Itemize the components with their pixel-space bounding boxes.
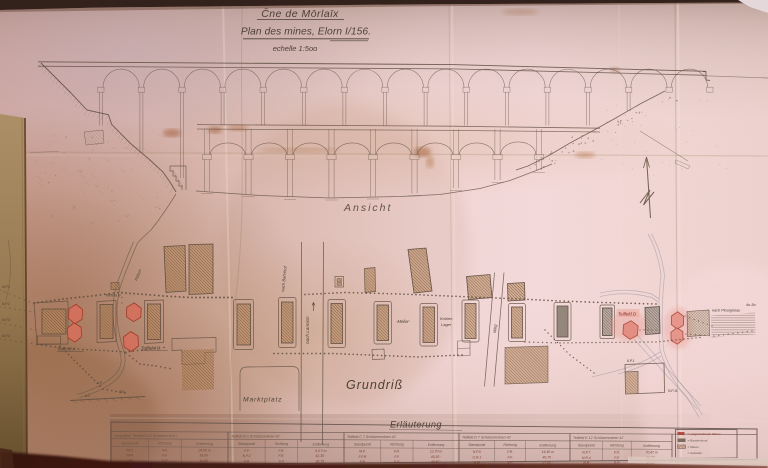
svg-text:F.F.: F.F. [614,456,620,460]
svg-text:Standpunkt: Standpunkt [578,443,596,447]
svg-text:Richtung: Richtung [390,443,403,447]
svg-text:Richtung: Richtung [158,442,171,446]
svg-text:N.P.3: N.P.3 [2,318,10,322]
svg-text:14,40 m: 14,40 m [542,450,554,454]
svg-text:F.R.: F.R. [278,449,284,453]
svg-text:N.P.5: N.P.5 [473,450,481,454]
svg-text:4o-5o: 4o-5o [746,303,756,307]
svg-text:F.R.: F.R. [614,450,620,454]
svg-text:Kohlen: Kohlen [440,316,453,321]
svg-text:40,70 ·: 40,70 · [543,455,554,459]
svg-text:Weg: Weg [492,323,498,333]
svg-text:Erläuterung: Erläuterung [390,420,442,430]
svg-text:NP1: NP1 [126,448,133,452]
svg-text:N.P.11: N.P.11 [668,389,678,393]
svg-text:Vorgeländ. Teilfeld A 12 Schüt: Vorgeländ. Teilfeld A 12 Schützen M.A.I [114,434,177,438]
svg-text:6,5 F m: 6,5 F m [315,449,327,453]
svg-text:70,47 m: 70,47 m [645,450,657,454]
svg-text:F.R.: F.R. [278,454,284,458]
svg-text:F.F.: F.F. [508,455,514,459]
svg-text:Entfernung: Entfernung [428,443,445,447]
svg-text:42,35 ·: 42,35 · [316,454,327,458]
svg-text:Marktplatz: Marktplatz [243,397,282,404]
svg-text:Entfernung: Entfernung [196,442,213,446]
svg-text:C̄ne de Mōrlaīx: C̄ne de Mōrlaīx [261,7,339,20]
svg-text:4.P: 4.P [97,381,103,385]
svg-text:Richtung: Richtung [503,443,516,447]
svg-text:S.P.: S.P. [278,460,284,464]
svg-text:F.R.: F.R. [507,450,513,454]
svg-text:F.P.R: F.P.R [359,455,367,459]
svg-text:87o: 87o [119,390,125,394]
svg-text:F.R.: F.R. [162,448,168,452]
svg-text:Plan des mines, Elorn I/156.: Plan des mines, Elorn I/156. [241,27,371,38]
svg-text:Teilfeld D: Teilfeld D [618,312,637,317]
svg-text:24,50 m: 24,50 m [197,448,210,452]
svg-text:N.R.4: N.R.4 [582,456,591,460]
svg-text:= Gelände: = Gelände [688,451,703,455]
svg-text:Entfernung: Entfernung [313,442,330,446]
svg-text:F.R.: F.R. [394,449,400,453]
svg-text:38,70 ·: 38,70 · [316,460,327,464]
svg-text:39,00 ·: 39,00 · [199,454,210,458]
svg-text:N.P.2: N.P.2 [2,302,10,306]
svg-text:Lager: Lager [441,322,452,327]
svg-text:Standpunkt: Standpunkt [238,442,256,446]
svg-text:M.P.: M.P. [359,449,366,453]
svg-text:Grundriß: Grundriß [346,378,403,392]
svg-text:6.P.1: 6.P.1 [627,359,635,363]
svg-text:Richtung: Richtung [275,442,288,446]
svg-text:F.F.: F.F. [162,454,168,458]
svg-text:Ansicht: Ansicht [343,202,392,214]
svg-text:Teilfeld B: Teilfeld B [105,294,121,298]
svg-text:N.P.7: N.P.7 [582,450,590,454]
svg-text:nach Lannion: nach Lannion [305,316,310,344]
svg-text:NP4: NP4 [126,454,133,458]
svg-text:Entfernung: Entfernung [643,444,660,448]
svg-text:F.P: F.P [244,449,250,453]
svg-text:Standpunkt: Standpunkt [468,443,486,447]
svg-text:-Meiler-: -Meiler- [396,319,411,324]
svg-text:Standpunkt: Standpunkt [354,442,372,446]
svg-text:Teilfeld B 3 Schützenminen: Teilfeld B 3 Schützenminen 42 [231,434,279,438]
svg-text:= Mauer: = Mauer [688,445,700,449]
svg-text:nach Plouigneau: nach Plouigneau [712,309,741,313]
svg-text:45,30 ·: 45,30 · [431,455,442,459]
svg-text:Teilfeld D 7 Schützenminen: Teilfeld D 7 Schützenminen 42 [462,436,511,440]
svg-text:Entfernung: Entfernung [540,444,557,448]
svg-text:N.P.1: N.P.1 [2,285,10,289]
svg-text:N.P.4: N.P.4 [2,334,10,338]
svg-text:Standpunkt: Standpunkt [121,441,139,445]
svg-text:F.F.: F.F. [394,455,400,459]
svg-text:= Baudenkmal: = Baudenkmal [688,439,708,443]
svg-text:= vorgezeichnete Minen: = vorgezeichnete Minen [688,432,721,436]
svg-text:echelle 1:5oo: echelle 1:5oo [273,44,318,53]
svg-text:N.P.2: N.P.2 [243,454,251,458]
svg-text:A.2: A.2 [85,394,90,398]
svg-text:O.R.1: O.R.1 [472,455,481,459]
svg-text:12,70 m: 12,70 m [430,449,442,453]
svg-text:Teilfeld E 12 Schützenminen: Teilfeld E 12 Schützenminen 42 [573,436,623,440]
svg-text:Teilfeld C 7 Schützenminen: Teilfeld C 7 Schützenminen 42 [347,435,396,439]
svg-text:Richtung: Richtung [610,444,623,448]
